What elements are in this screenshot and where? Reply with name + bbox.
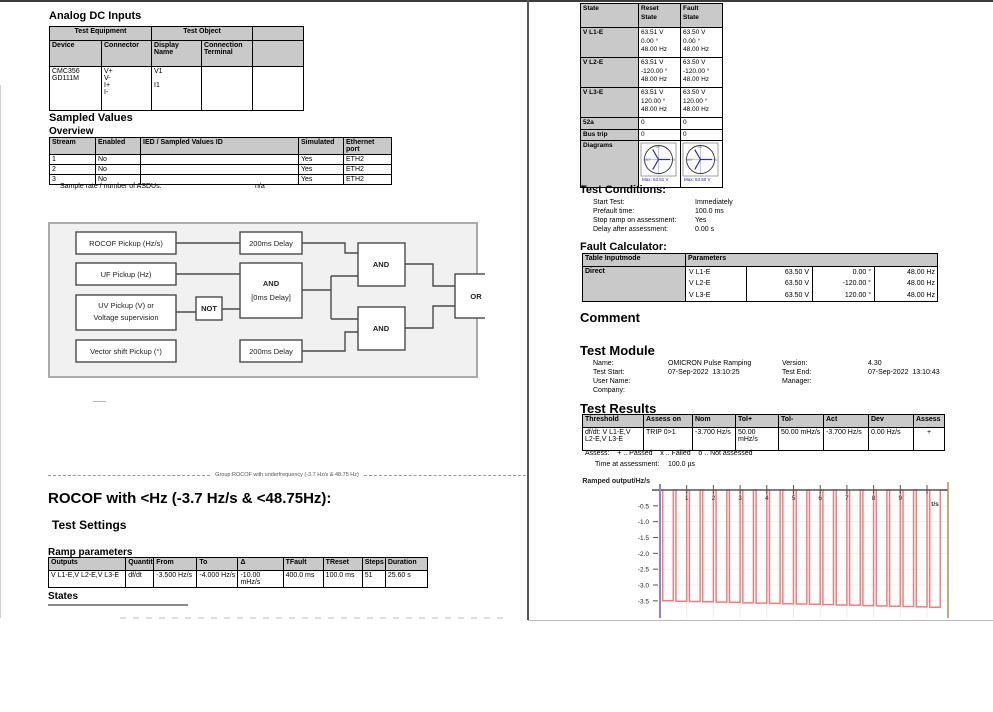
- table-row: V L1-E,V L2-E,V L3-E df/dt -3.500 Hz/s -…: [49, 571, 428, 588]
- cell: Yes: [299, 175, 344, 185]
- analog-dc-inputs-table: Test Equipment Test Object Device Connec…: [49, 26, 304, 111]
- table-row: V L3-E 63.51 V 120.00 ° 48.00 Hz 63.50 V…: [581, 88, 723, 118]
- x-tick-label: 1: [685, 495, 689, 502]
- condition-row: Stop ramp on assessment:: [593, 216, 676, 225]
- table-row: Bus trip 0 0: [581, 129, 723, 141]
- param-voltage: 63.50 V: [746, 290, 812, 301]
- states-title: States: [48, 591, 78, 602]
- cell: 0: [681, 129, 723, 141]
- y-tick-label: -1.5: [638, 535, 650, 542]
- group-divider-label: Group:ROCOF with underfrequency (-3.7 Hz…: [215, 472, 359, 478]
- cell-assess-on: TRIP 0>1: [644, 428, 693, 451]
- module-label: Company:: [593, 386, 625, 395]
- phasor-90-label: 90°: [655, 144, 661, 149]
- cell: ETH2: [344, 175, 392, 185]
- cell: [141, 175, 299, 185]
- table-row: Outputs Quantity From To Δ TFault TReset…: [49, 558, 428, 571]
- column-header: TReset: [323, 558, 362, 571]
- column-header: Connector: [102, 41, 152, 67]
- module-label-text: Test End:: [782, 369, 811, 376]
- cell-nom: -3.700 Hz/s: [693, 428, 736, 451]
- param-name: V L2-E: [686, 278, 746, 289]
- table-row: V L2-E 63.51 V -120.00 ° 48.00 Hz 63.50 …: [581, 58, 723, 88]
- time-at-assessment-value: 100.0 µs: [668, 461, 695, 468]
- column-header: Table Inputmode: [583, 254, 686, 267]
- column-header: Stream: [50, 138, 96, 155]
- cell: 25.60 s: [385, 571, 427, 588]
- cell: -4.000 Hz/s: [197, 571, 238, 588]
- cell-reset-state: 63.51 V 0.00 ° 48.00 Hz: [639, 28, 681, 58]
- column-header: Simulated: [299, 138, 344, 155]
- x-tick-label: 3: [738, 495, 742, 502]
- module-label-text: User Name:: [593, 378, 630, 385]
- condition-value: Yes: [695, 216, 706, 225]
- param-angle: 120.00 °: [812, 290, 874, 301]
- module-value: 07-Sep-2022 13:10:25: [668, 368, 740, 377]
- cell-reset-state: 63.51 V 120.00 ° 48.00 Hz: [639, 88, 681, 118]
- box-label: ROCOF Pickup (Hz/s): [89, 239, 163, 248]
- column-header: Connection Terminal: [202, 41, 253, 67]
- cell: 0: [681, 118, 723, 130]
- module-label: Version:: [782, 359, 807, 368]
- condition-row: Delay after assessment:: [593, 225, 668, 234]
- condition-value-text: Immediately: [695, 199, 733, 206]
- x-tick-label: 2: [712, 495, 716, 502]
- page-artifact-dash: [93, 401, 106, 402]
- box-label: AND: [373, 324, 390, 333]
- right-page-bottom-border: [528, 620, 993, 621]
- module-label: Manager:: [782, 377, 812, 386]
- condition-row: Prefault time:: [593, 207, 634, 216]
- param-angle: 0.00 °: [812, 267, 874, 278]
- page-divider: [527, 0, 529, 620]
- logic-diagram: ROCOF Pickup (Hz/s) 200ms Delay UF Picku…: [48, 220, 485, 380]
- column-header: Duration: [385, 558, 427, 571]
- cell: 0: [639, 129, 681, 141]
- phasor-diagram-fault: 90°180°0Max: 63.50 V: [682, 142, 720, 182]
- column-header: Test Object: [152, 27, 253, 41]
- box-label: AND: [263, 279, 280, 288]
- box-label: OR: [470, 292, 482, 301]
- chart-title: Ramped output/Hz/s: [582, 478, 650, 485]
- box-label: [0ms Delay]: [251, 293, 291, 302]
- column-header: From: [154, 558, 197, 571]
- box-label: 200ms Delay: [249, 347, 293, 356]
- column-header: Steps: [362, 558, 385, 571]
- x-tick-label: 4: [765, 495, 769, 502]
- condition-row: Start Test:: [593, 198, 624, 207]
- cell: Yes: [299, 155, 344, 165]
- module-label-text: Test Start:: [593, 369, 625, 376]
- cell-fault-state: 63.50 V 120.00 ° 48.00 Hz: [681, 88, 723, 118]
- condition-label: Stop ramp on assessment:: [593, 217, 676, 224]
- states-underline: [48, 604, 188, 606]
- y-tick-label: -3.5: [638, 598, 650, 605]
- test-conditions-title: Test Conditions:: [580, 184, 666, 196]
- table-row: Direct V L1-E 63.50 V 0.00 ° 48.00 Hz V …: [583, 267, 938, 302]
- table-row: Diagrams 90°180°0Max: 63.51 V 90°180°0Ma…: [581, 141, 723, 188]
- cell-parameters: V L1-E 63.50 V 0.00 ° 48.00 Hz V L2-E 63…: [686, 267, 938, 302]
- table-row: 1 No Yes ETH2: [50, 155, 392, 165]
- y-tick-label: -2.5: [638, 567, 650, 574]
- report-preview: Analog DC Inputs Test Equipment Test Obj…: [0, 0, 993, 712]
- column-header: [253, 41, 304, 67]
- table-row: 2 No Yes ETH2: [50, 165, 392, 175]
- module-value: 07-Sep-2022 13:10:43: [868, 368, 940, 377]
- sampled-values-title: Sampled Values: [49, 112, 133, 124]
- table-row: Table Inputmode Parameters: [583, 254, 938, 267]
- test-results-table: Threshold Assess on Nom Tol+ Tol- Act De…: [582, 414, 945, 451]
- column-header: Device: [50, 41, 102, 67]
- top-border: [0, 0, 993, 2]
- left-page-edge: [0, 85, 1, 618]
- analog-dc-inputs-title: Analog DC Inputs: [49, 10, 141, 22]
- module-value-text: 4.30: [868, 360, 882, 367]
- fault-calculator-table: Table Inputmode Parameters Direct V L1-E…: [582, 253, 938, 302]
- param-voltage: 63.50 V: [746, 278, 812, 289]
- cell: V L1-E,V L2-E,V L3-E: [49, 571, 126, 588]
- cell: No: [96, 165, 141, 175]
- module-value-text: 07-Sep-2022 13:10:25: [668, 369, 740, 376]
- column-header: State: [581, 4, 639, 28]
- ramped-output-chart: 123456789-0.5-1.0-1.5-2.0-2.5-3.0-3.5Ram…: [556, 472, 993, 620]
- module-label: Test Start:: [593, 368, 625, 377]
- comment-title: Comment: [580, 310, 640, 325]
- box-label: Vector shift Pickup (°): [90, 347, 162, 356]
- box-label: UV Pickup (V) or: [98, 301, 154, 310]
- column-header: Outputs: [49, 558, 126, 571]
- cell-tol-plus: 50.00 mHz/s: [736, 428, 779, 451]
- cell-dev: 0.00 Hz/s: [869, 428, 914, 451]
- column-header: Tol-: [779, 415, 824, 428]
- y-tick-label: -1.0: [638, 519, 650, 526]
- column-header: [253, 27, 304, 41]
- section-title: ROCOF with <Hz (-3.7 Hz/s & <48.75Hz):: [48, 490, 331, 507]
- cell: [141, 165, 299, 175]
- column-header: Parameters: [686, 254, 938, 267]
- condition-label: Start Test:: [593, 199, 624, 206]
- cell-connection-terminal: [202, 67, 253, 111]
- table-row: 52a 0 0: [581, 118, 723, 130]
- cell-tol-minus: 50.00 mHz/s: [779, 428, 824, 451]
- row-label: Diagrams: [581, 141, 639, 188]
- column-header: Assess on: [644, 415, 693, 428]
- cell-fault-state: 63.50 V 0.00 ° 48.00 Hz: [681, 28, 723, 58]
- phasor-max-caption: Max: 63.50 V: [684, 177, 711, 182]
- cell: 2: [50, 165, 96, 175]
- module-label: Name:: [593, 359, 614, 368]
- cell-act: -3.700 Hz/s: [824, 428, 869, 451]
- column-header: Fault State: [681, 4, 723, 28]
- cell-connector: V+ V- I+ I-: [102, 67, 152, 111]
- condition-label: Prefault time:: [593, 208, 634, 215]
- module-label: Test End:: [782, 368, 811, 377]
- test-module-title: Test Module: [580, 343, 655, 358]
- cell-threshold: df/dt: V L1-E,V L2-E,V L3-E: [583, 428, 644, 451]
- param-voltage: 63.50 V: [746, 267, 812, 278]
- fault-calculator-title: Fault Calculator:: [580, 241, 667, 253]
- row-label: Bus trip: [581, 129, 639, 141]
- param-angle: -120.00 °: [812, 278, 874, 289]
- cell-device: CMC356 GD111M: [50, 67, 102, 111]
- module-value-text: OMICRON Pulse Ramping: [668, 360, 751, 367]
- cell: 51: [362, 571, 385, 588]
- table-row: df/dt: V L1-E,V L2-E,V L3-E TRIP 0>1 -3.…: [583, 428, 945, 451]
- sampled-values-table: Stream Enabled IED / Sampled Values ID S…: [49, 137, 392, 185]
- x-tick-label: 8: [872, 495, 876, 502]
- test-settings-title: Test Settings: [52, 518, 126, 532]
- column-header: Test Equipment: [50, 27, 152, 41]
- cell-fault-state: 63.50 V -120.00 ° 48.00 Hz: [681, 58, 723, 88]
- phasor-90-label: 90°: [697, 144, 703, 149]
- cell: [141, 155, 299, 165]
- row-label: V L2-E: [581, 58, 639, 88]
- waveform: [660, 490, 948, 607]
- module-label-text: Name:: [593, 360, 614, 367]
- box-label: Voltage supervision: [93, 313, 158, 322]
- row-label: 52a: [581, 118, 639, 130]
- phasor-180-label: 180°: [643, 157, 652, 162]
- column-header: Tol+: [736, 415, 779, 428]
- cell-phasor-reset: 90°180°0Max: 63.51 V: [639, 141, 681, 188]
- module-value-text: 07-Sep-2022 13:10:43: [868, 369, 940, 376]
- box-label: NOT: [201, 304, 217, 313]
- column-header: Δ: [238, 558, 283, 571]
- box-and-mid: [240, 263, 302, 318]
- condition-value: 100.0 ms: [695, 207, 724, 216]
- column-header: Enabled: [96, 138, 141, 155]
- cell-assess: +: [914, 428, 945, 451]
- column-header: Reset State: [639, 4, 681, 28]
- cell: 400.0 ms: [283, 571, 323, 588]
- module-label-text: Version:: [782, 360, 807, 367]
- x-tick-label: 7: [845, 495, 849, 502]
- condition-value-text: 0.00 s: [695, 226, 714, 233]
- param-name: V L3-E: [686, 290, 746, 301]
- condition-label: Delay after assessment:: [593, 226, 668, 233]
- y-tick-label: -0.5: [638, 503, 650, 510]
- cell: df/dt: [126, 571, 154, 588]
- column-header: To: [197, 558, 238, 571]
- column-header: Nom: [693, 415, 736, 428]
- phasor-max-caption: Max: 63.51 V: [642, 177, 669, 182]
- column-header: TFault: [283, 558, 323, 571]
- y-tick-label: -2.0: [638, 551, 650, 558]
- cell: ETH2: [344, 155, 392, 165]
- cell-reset-state: 63.51 V -120.00 ° 48.00 Hz: [639, 58, 681, 88]
- x-tick-label: 6: [818, 495, 822, 502]
- cell: ETH2: [344, 165, 392, 175]
- cell: 0: [639, 118, 681, 130]
- row-label: V L3-E: [581, 88, 639, 118]
- overview-title: Overview: [49, 126, 93, 137]
- cell: [253, 67, 304, 111]
- cell-inputmode: Direct: [583, 267, 686, 302]
- ramp-parameters-table: Outputs Quantity From To Δ TFault TReset…: [48, 557, 428, 588]
- condition-value-text: 100.0 ms: [695, 208, 724, 215]
- module-label: User Name:: [593, 377, 630, 386]
- state-table: State Reset State Fault State V L1-E 63.…: [580, 3, 723, 188]
- phasor-diagram-reset: 90°180°0Max: 63.51 V: [640, 142, 678, 182]
- cell: 100.0 ms: [323, 571, 362, 588]
- param-name: V L1-E: [686, 267, 746, 278]
- param-frequency: 48.00 Hz: [874, 278, 938, 289]
- table-row: Device Connector Display Name Connection…: [50, 41, 304, 67]
- column-header: Assess: [914, 415, 945, 428]
- condition-value: 0.00 s: [695, 225, 714, 234]
- column-header: IED / Sampled Values ID: [141, 138, 299, 155]
- cell: 1: [50, 155, 96, 165]
- condition-value-text: Yes: [695, 217, 706, 224]
- box-label: 200ms Delay: [249, 239, 293, 248]
- table-row: State Reset State Fault State: [581, 4, 723, 28]
- column-header: Ethernet port: [344, 138, 392, 155]
- column-header: Display Name: [152, 41, 202, 67]
- cell-display-name: V1 I1: [152, 67, 202, 111]
- param-frequency: 48.00 Hz: [874, 290, 938, 301]
- x-axis-label: t/s: [931, 501, 939, 508]
- table-row: Stream Enabled IED / Sampled Values ID S…: [50, 138, 392, 155]
- x-tick-label: 9: [898, 495, 902, 502]
- column-header: Threshold: [583, 415, 644, 428]
- x-tick-label: 5: [792, 495, 796, 502]
- assess-legend: Assess: + .. Passed x .. Failed o .. Not…: [585, 450, 753, 457]
- y-tick-label: -3.0: [638, 583, 650, 590]
- sample-rate-value: n/a: [255, 183, 265, 190]
- cell: -10.00 mHz/s: [238, 571, 283, 588]
- cell: No: [96, 155, 141, 165]
- param-frequency: 48.00 Hz: [874, 267, 938, 278]
- group-divider: Group:ROCOF with underfrequency (-3.7 Hz…: [48, 472, 526, 478]
- box-label: AND: [373, 260, 390, 269]
- phasor-180-label: 180°: [685, 157, 694, 162]
- condition-value: Immediately: [695, 198, 733, 207]
- table-row: Threshold Assess on Nom Tol+ Tol- Act De…: [583, 415, 945, 428]
- time-at-assessment-label: Time at assessment:: [595, 461, 659, 468]
- table-row: CMC356 GD111M V+ V- I+ I- V1 I1: [50, 67, 304, 111]
- module-value: OMICRON Pulse Ramping: [668, 359, 751, 368]
- cell: Yes: [299, 165, 344, 175]
- table-row: Test Equipment Test Object: [50, 27, 304, 41]
- table-row: V L1-E 63.51 V 0.00 ° 48.00 Hz 63.50 V 0…: [581, 28, 723, 58]
- faint-table-ghost: [120, 617, 505, 619]
- row-label: V L1-E: [581, 28, 639, 58]
- column-header: Quantity: [126, 558, 154, 571]
- module-value: 4.30: [868, 359, 882, 368]
- column-header: Act: [824, 415, 869, 428]
- module-label-text: Company:: [593, 387, 625, 394]
- sample-rate-label: Sample rate / number of ASDUs:: [60, 183, 162, 190]
- cell: -3.500 Hz/s: [154, 571, 197, 588]
- cell-phasor-fault: 90°180°0Max: 63.50 V: [681, 141, 723, 188]
- fault-parameters-grid: V L1-E 63.50 V 0.00 ° 48.00 Hz V L2-E 63…: [686, 267, 937, 301]
- module-label-text: Manager:: [782, 378, 812, 385]
- column-header: Dev: [869, 415, 914, 428]
- box-label: UF Pickup (Hz): [101, 270, 152, 279]
